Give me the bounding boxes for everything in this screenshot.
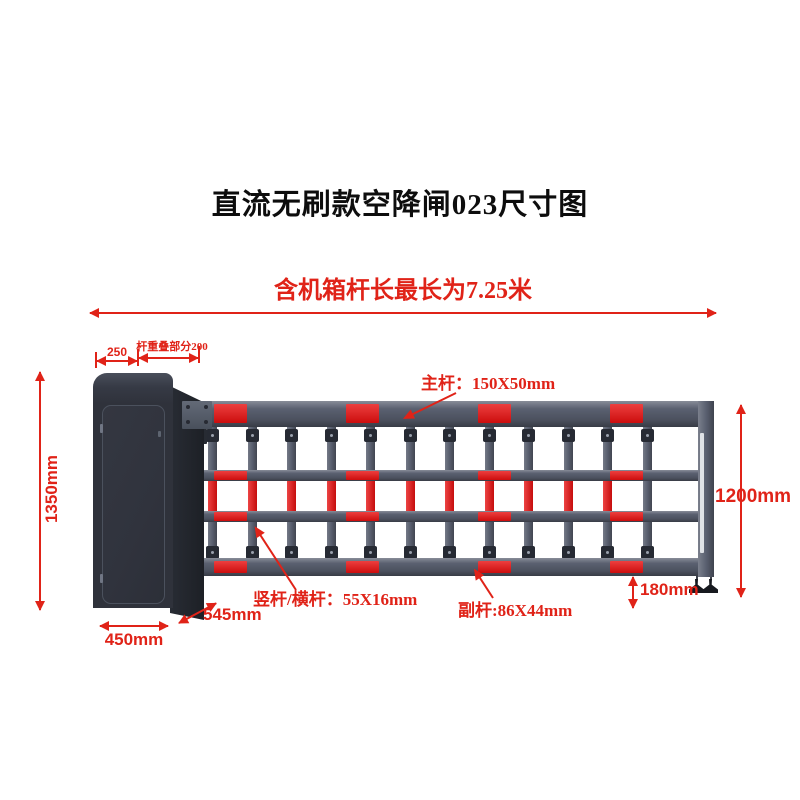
pole-overlap-arrow [139,357,198,359]
mid-rail-reflector [346,512,379,521]
post-clip [325,429,338,442]
post-reflector-strip [208,481,217,511]
mid-rail-reflector [610,512,643,521]
dimension-diagram: 直流无刷款空降闸023尺寸图 含机箱杆长最长为7.25米 250 杆重叠部分20… [0,0,800,800]
aux-rail-reflector [478,561,511,573]
post-clip [522,429,535,442]
post-reflector-strip [327,481,336,511]
post-reflector-strip [524,481,533,511]
end-post-reflective-strip [700,433,704,553]
overall-length-arrow [90,312,716,314]
door-lock [158,431,161,437]
post-clip [601,429,614,442]
barrier-height-label: 1200mm [715,486,791,508]
bracket-bolt [186,405,190,409]
post-reflector-strip [603,481,612,511]
aux-pole-label: 副杆:86X44mm [458,596,572,621]
cabinet-height-label: 1350mm [42,453,62,525]
ground-clearance-label: 180mm [640,580,699,600]
bracket-bolt [204,405,208,409]
door-hinge [100,574,103,583]
diagram-title: 直流无刷款空降闸023尺寸图 [0,181,800,223]
post-clip [246,429,259,442]
post-reflector-strip [564,481,573,511]
aux-rail-reflector [610,561,643,573]
main-rail-reflector [346,404,379,423]
door-hinge [100,424,103,433]
post-clip [483,429,496,442]
cabinet-width-label: 450mm [100,630,168,650]
mid-rail-reflector [346,471,379,480]
support-foot [703,579,718,593]
cabinet-width-arrow [100,625,168,627]
post-clip [404,429,417,442]
barrier-post [643,427,652,562]
cabinet-door [102,405,165,604]
post-reflector-strip [287,481,296,511]
mid-rail-reflector [478,512,511,521]
mid-rail-reflector [214,512,247,521]
overall-length-label: 含机箱杆长最长为7.25米 [90,270,716,305]
post-clip [443,429,456,442]
post-clip [562,429,575,442]
post-reflector-strip [445,481,454,511]
post-reflector-strip [485,481,494,511]
main-pole-label: 主杆：150X50mm [421,369,555,394]
bracket-bolt [204,420,208,424]
mid-rail-reflector [214,471,247,480]
mid-rail-reflector [478,471,511,480]
post-clip [641,429,654,442]
mid-rail-reflector [610,471,643,480]
main-rail-reflector [610,404,643,423]
post-clip [206,429,219,442]
main-rail-reflector [478,404,511,423]
post-clip [364,429,377,442]
vertical-pole-label: 竖杆/横杆：55X16mm [253,585,417,610]
main-rail-reflector [214,404,247,423]
aux-rail-reflector [214,561,247,573]
post-reflector-strip [406,481,415,511]
ground-clearance-arrow [632,577,634,608]
aux-rail-reflector [346,561,379,573]
bracket-bolt [186,420,190,424]
post-reflector-strip [366,481,375,511]
post-clip [285,429,298,442]
cabinet-height-arrow [39,372,41,610]
post-reflector-strip [248,481,257,511]
pole-overlap-label: 杆重叠部分200 [130,338,214,354]
cabinet-top-width-arrow [97,360,137,362]
